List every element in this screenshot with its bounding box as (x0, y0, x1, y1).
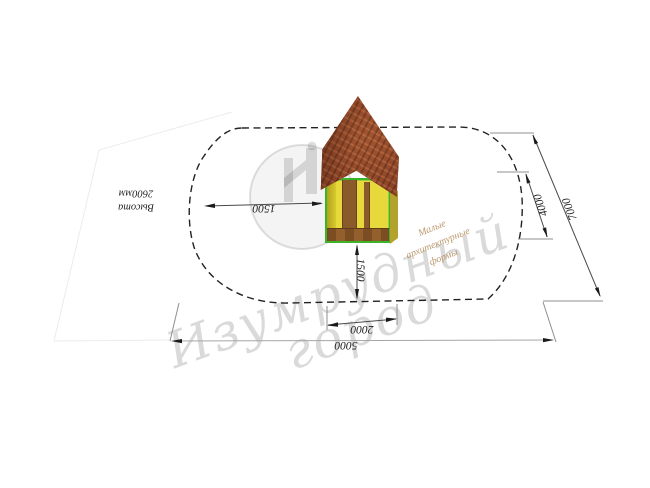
playhouse-front-wall (325, 178, 391, 243)
dimension-label-plot-depth: 7000 (560, 196, 580, 222)
dimension-label-zone-depth: 4000 (532, 192, 551, 218)
dimension-label-left-offset: 1500 (252, 202, 275, 214)
height-annotation-line2: 2600мм (105, 186, 167, 200)
dimension-label-footprint-width: 2000 (350, 323, 373, 335)
dimension-drawing: 1500 1500 2000 5000 4000 7000 (0, 0, 650, 488)
playhouse-floor (327, 228, 389, 241)
dimension-label-zone-width: 5000 (334, 339, 357, 351)
drawing-canvas: Изумрудный город Малые архитектурные фор… (0, 0, 650, 488)
height-annotation-line1: Высота (105, 200, 167, 214)
height-annotation: Высота 2600мм (105, 186, 167, 213)
dimension-label-front-offset: 1500 (354, 259, 366, 282)
plot-outline-faint (54, 112, 232, 341)
